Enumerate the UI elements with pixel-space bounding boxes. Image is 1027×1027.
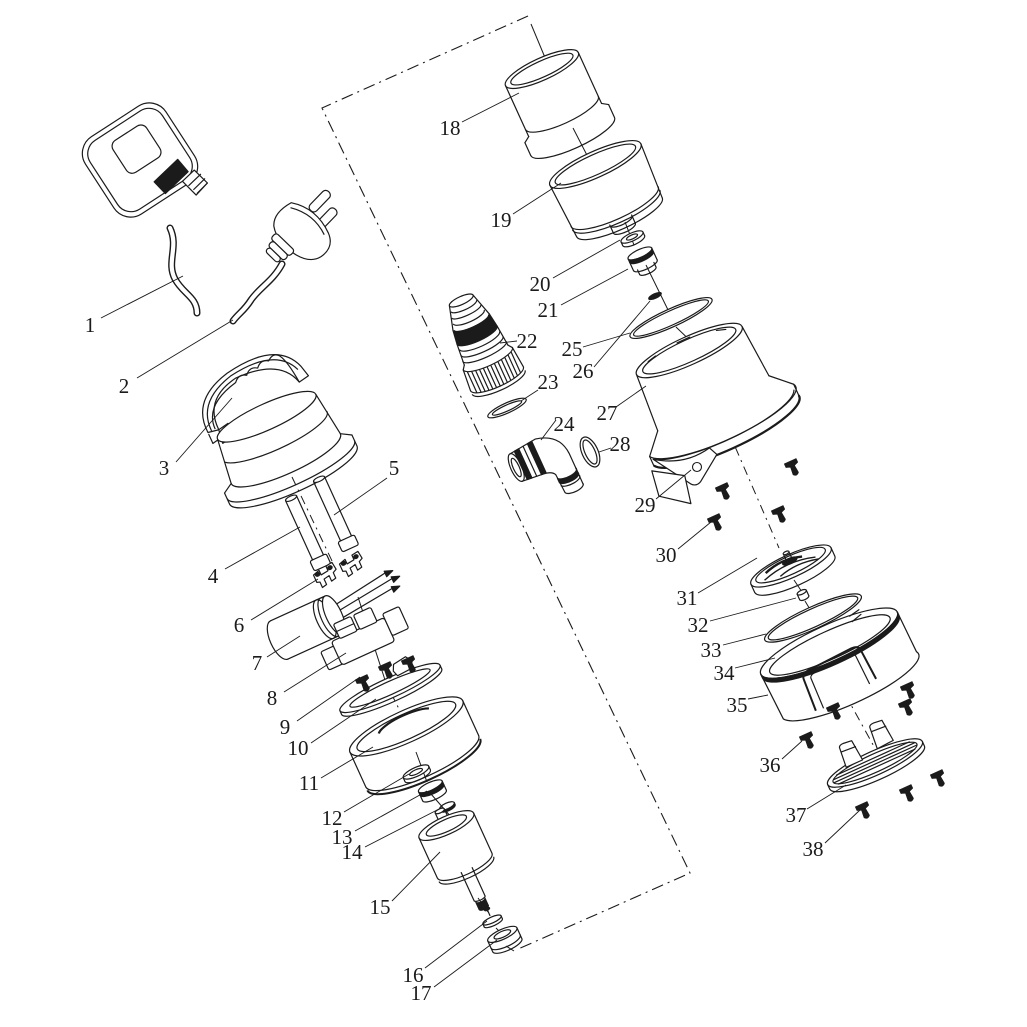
ball-contour [693, 463, 702, 472]
part-label-15: 15 [370, 895, 391, 919]
part-label-26: 26 [573, 359, 594, 383]
part-label-18: 18 [440, 116, 461, 140]
part-label-32: 32 [688, 613, 709, 637]
part-label-23: 23 [538, 370, 559, 394]
part-label-29: 29 [635, 493, 656, 517]
part-label-1: 1 [85, 313, 96, 337]
part-label-4: 4 [208, 564, 219, 588]
part-label-37: 37 [786, 803, 807, 827]
part-label-33: 33 [701, 638, 722, 662]
part-label-24: 24 [554, 412, 576, 436]
part-label-28: 28 [610, 432, 631, 456]
diagram-page: 1234567891011121314151617181920212223242… [0, 0, 1027, 1027]
part-label-10: 10 [288, 736, 309, 760]
part-29-ball [693, 463, 702, 472]
part-label-19: 19 [491, 208, 512, 232]
part-label-7: 7 [252, 651, 263, 675]
part-label-5: 5 [389, 456, 400, 480]
part-label-38: 38 [803, 837, 824, 861]
part-label-27: 27 [597, 401, 618, 425]
part-label-35: 35 [727, 693, 748, 717]
part-label-31: 31 [677, 586, 698, 610]
part-label-14: 14 [342, 840, 364, 864]
part-label-34: 34 [714, 661, 736, 685]
part-label-17: 17 [411, 981, 432, 1005]
part-label-22: 22 [517, 329, 538, 353]
part-label-8: 8 [267, 686, 278, 710]
part-label-21: 21 [538, 298, 559, 322]
part-label-6: 6 [234, 613, 245, 637]
part-label-36: 36 [760, 753, 781, 777]
part-label-30: 30 [656, 543, 677, 567]
exploded-diagram-canvas: 1234567891011121314151617181920212223242… [0, 0, 1027, 1027]
part-label-11: 11 [299, 771, 319, 795]
part-label-2: 2 [119, 374, 130, 398]
part-label-20: 20 [530, 272, 551, 296]
part-label-3: 3 [159, 456, 170, 480]
part-label-25: 25 [562, 337, 583, 361]
